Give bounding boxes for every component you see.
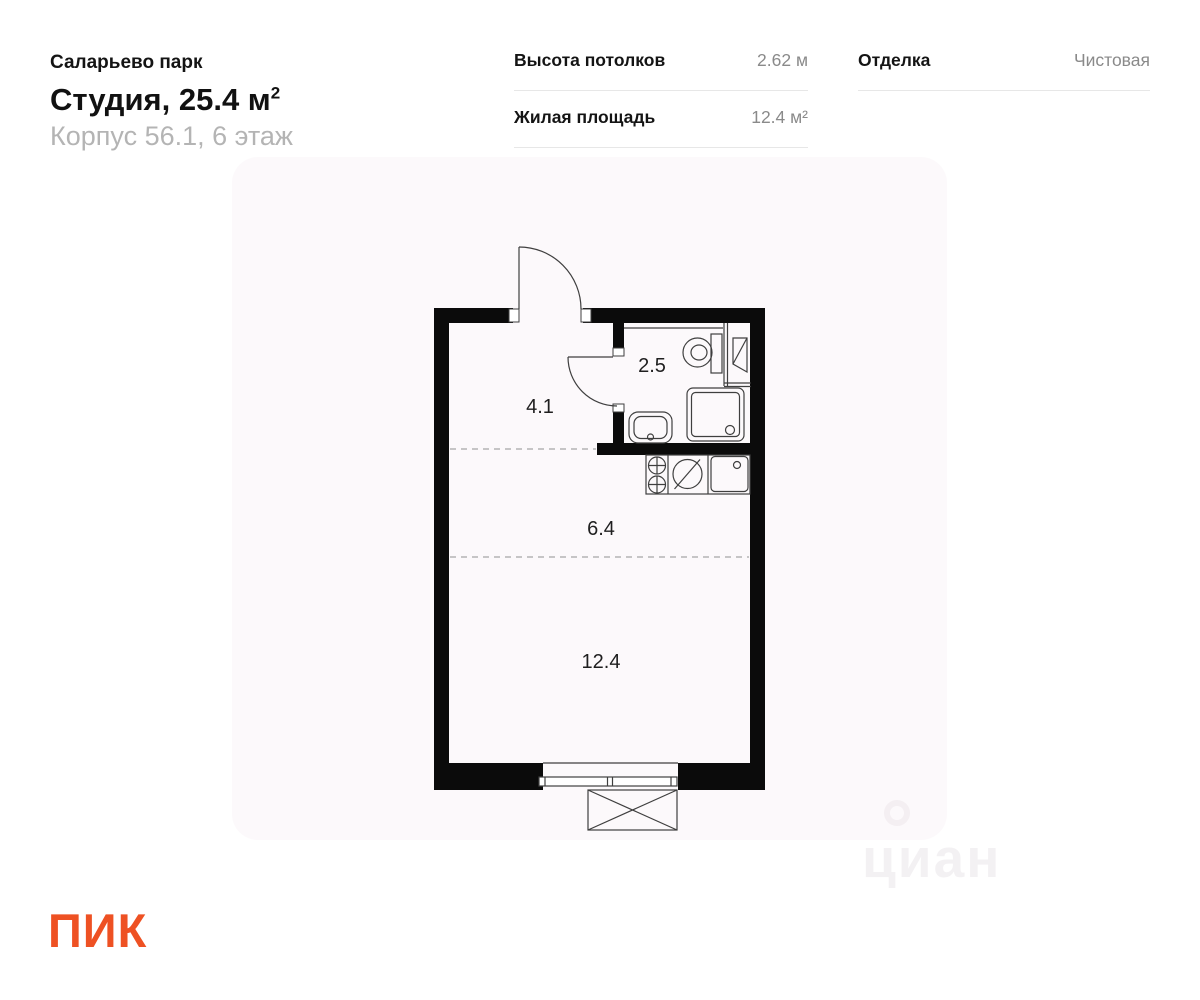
stat-label: Отделка [858, 50, 930, 71]
vent-shaft-icon [724, 323, 751, 387]
stat-value: 2.62 м [757, 50, 808, 71]
page-title: Студия, 25.4 м2 [50, 82, 280, 118]
building-floor-subtitle: Корпус 56.1, 6 этаж [50, 121, 293, 152]
project-name: Саларьево парк [50, 52, 202, 74]
room-label-bathroom: 2.5 [638, 355, 666, 377]
washbasin-icon [629, 412, 672, 443]
kitchen-counter [646, 455, 750, 494]
walls [434, 308, 765, 790]
pik-logo: ПИК [48, 903, 147, 958]
stats-column-left: Высота потолков 2.62 м Жилая площадь 12.… [514, 34, 808, 148]
page-title-superscript: 2 [271, 84, 280, 103]
stat-row-ceiling-height: Высота потолков 2.62 м [514, 34, 808, 91]
kitchen-sink-icon [711, 457, 748, 492]
balcony [588, 790, 677, 830]
watermark-text: циан [862, 826, 1001, 890]
bathroom-door-icon [568, 357, 617, 406]
room-label-living-room: 12.4 [582, 651, 621, 673]
stove-icon [649, 457, 666, 493]
stat-value: Чистовая [1074, 50, 1150, 71]
window [539, 763, 678, 786]
shower-icon [687, 388, 744, 441]
stat-label: Жилая площадь [514, 107, 655, 128]
room-label-hallway: 4.1 [526, 396, 554, 418]
hob-icon [673, 460, 702, 490]
floorplan: 4.1 2.5 6.4 12.4 [380, 220, 820, 880]
stat-value: 12.4 м² [751, 107, 808, 128]
toilet-icon [683, 334, 722, 373]
entry-door-icon [519, 247, 581, 309]
zone-dashed-lines [450, 449, 749, 557]
watermark-logo-icon [884, 800, 910, 826]
stat-label: Высота потолков [514, 50, 665, 71]
room-label-kitchen: 6.4 [587, 518, 615, 540]
bathroom-fixtures [624, 323, 751, 443]
stat-row-living-area: Жилая площадь 12.4 м² [514, 91, 808, 148]
page-title-text: Студия, 25.4 м [50, 82, 271, 117]
stats-column-right: Отделка Чистовая [858, 34, 1150, 91]
stat-row-finishing: Отделка Чистовая [858, 34, 1150, 91]
